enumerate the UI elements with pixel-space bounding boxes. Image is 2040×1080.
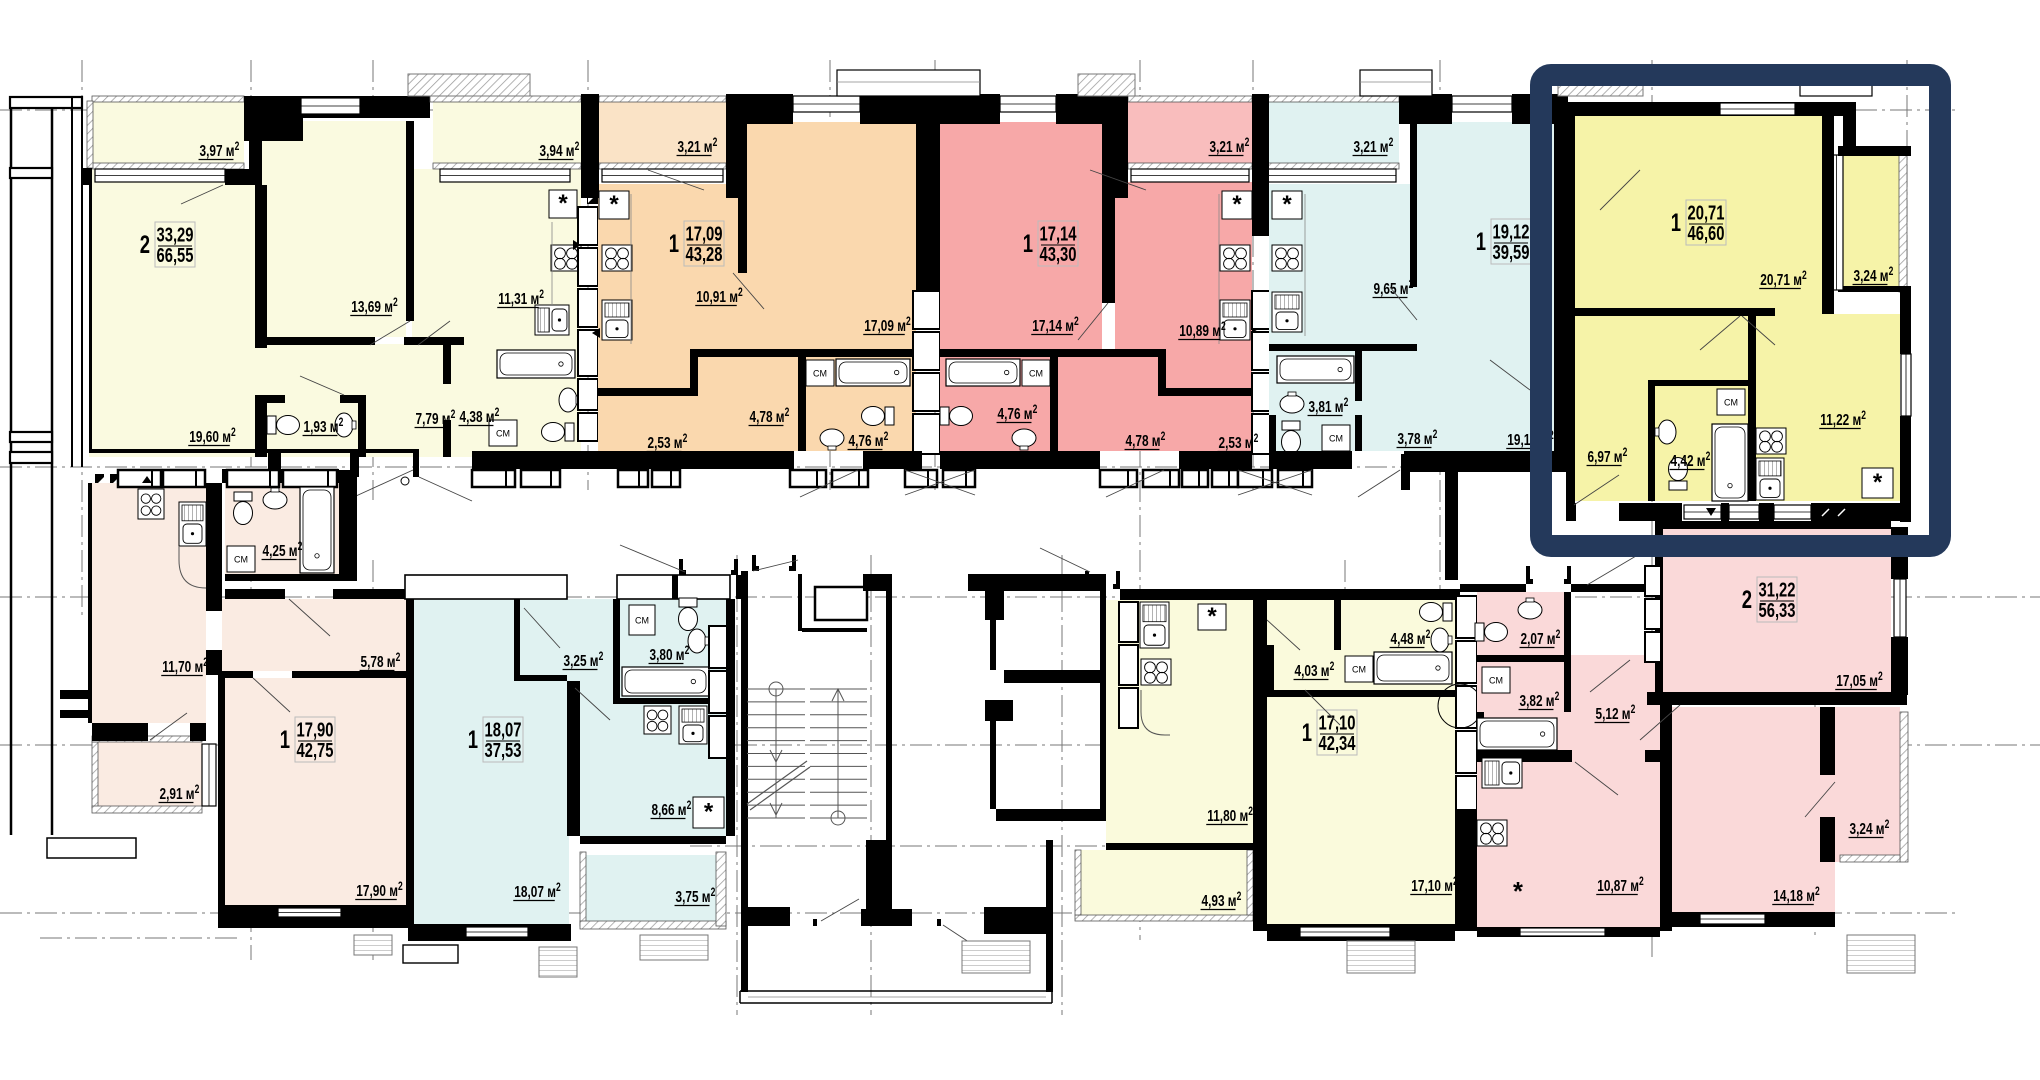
svg-text:1: 1 (1671, 208, 1681, 236)
svg-text:4,25 м2: 4,25 м2 (263, 541, 303, 560)
svg-text:4,76 м2: 4,76 м2 (849, 431, 889, 450)
svg-text:4,38 м2: 4,38 м2 (460, 407, 500, 426)
svg-text:СМ: СМ (1489, 676, 1503, 686)
svg-text:*: * (1232, 191, 1242, 218)
svg-text:СМ: СМ (1329, 434, 1343, 444)
svg-text:2: 2 (1742, 585, 1752, 613)
svg-text:18,07 м2: 18,07 м2 (514, 882, 561, 901)
svg-text:3,21 м2: 3,21 м2 (678, 137, 718, 156)
svg-text:43,30: 43,30 (1039, 243, 1076, 266)
svg-text:*: * (1207, 603, 1217, 630)
svg-text:11,22 м2: 11,22 м2 (1820, 410, 1866, 429)
svg-text:4,48 м2: 4,48 м2 (1391, 629, 1431, 648)
svg-text:3,80 м2: 3,80 м2 (650, 645, 690, 664)
svg-text:*: * (609, 191, 619, 218)
svg-text:33,29: 33,29 (156, 223, 193, 246)
svg-text:8,66 м2: 8,66 м2 (652, 800, 692, 819)
svg-text:17,90: 17,90 (296, 718, 333, 741)
svg-text:1: 1 (468, 725, 478, 753)
svg-text:17,09 м2: 17,09 м2 (864, 316, 911, 335)
svg-text:*: * (558, 190, 568, 217)
svg-text:5,78 м2: 5,78 м2 (361, 652, 401, 671)
svg-text:СМ: СМ (1724, 398, 1738, 408)
svg-text:1: 1 (669, 229, 679, 257)
svg-text:17,09: 17,09 (685, 222, 722, 245)
svg-text:СМ: СМ (234, 555, 248, 565)
svg-text:17,90 м2: 17,90 м2 (356, 881, 403, 900)
svg-text:3,21 м2: 3,21 м2 (1210, 137, 1250, 156)
svg-text:11,80 м2: 11,80 м2 (1207, 806, 1253, 825)
svg-text:*: * (1282, 191, 1292, 218)
svg-text:1: 1 (1302, 718, 1312, 746)
svg-text:3,97 м2: 3,97 м2 (200, 141, 240, 160)
svg-text:17,14: 17,14 (1039, 222, 1076, 245)
svg-text:4,78 м2: 4,78 м2 (1126, 431, 1166, 450)
svg-text:1: 1 (280, 725, 290, 753)
svg-text:4,42 м2: 4,42 м2 (1671, 451, 1711, 470)
svg-text:10,89 м2: 10,89 м2 (1179, 321, 1226, 340)
svg-text:3,82 м2: 3,82 м2 (1520, 691, 1560, 710)
svg-text:10,87 м2: 10,87 м2 (1597, 876, 1644, 895)
svg-text:10,91 м2: 10,91 м2 (696, 287, 743, 306)
svg-text:19,12: 19,12 (1492, 220, 1529, 243)
svg-text:9,65 м2: 9,65 м2 (1374, 279, 1414, 298)
svg-text:17,05 м2: 17,05 м2 (1836, 671, 1883, 690)
svg-text:39,59: 39,59 (1492, 241, 1529, 264)
svg-text:3,78 м2: 3,78 м2 (1398, 429, 1438, 448)
svg-text:СМ: СМ (813, 369, 827, 379)
svg-text:14,18 м2: 14,18 м2 (1773, 886, 1820, 905)
svg-text:43,28: 43,28 (685, 243, 722, 266)
svg-text:56,33: 56,33 (1758, 599, 1795, 622)
svg-text:18,07: 18,07 (484, 718, 521, 741)
svg-text:1: 1 (1023, 229, 1033, 257)
svg-text:СМ: СМ (1352, 665, 1366, 675)
svg-text:2: 2 (140, 230, 150, 258)
svg-text:7,79 м2: 7,79 м2 (416, 409, 456, 428)
svg-text:3,21 м2: 3,21 м2 (1354, 137, 1394, 156)
svg-text:19,60 м2: 19,60 м2 (189, 427, 236, 446)
svg-text:*: * (1873, 469, 1883, 496)
svg-text:5,12 м2: 5,12 м2 (1596, 704, 1636, 723)
svg-text:13,69 м2: 13,69 м2 (351, 297, 398, 316)
svg-text:4,76 м2: 4,76 м2 (998, 404, 1038, 423)
svg-text:11,70 м2: 11,70 м2 (162, 657, 208, 676)
svg-text:3,24 м2: 3,24 м2 (1850, 819, 1890, 838)
svg-text:4,78 м2: 4,78 м2 (750, 407, 790, 426)
svg-text:3,24 м2: 3,24 м2 (1854, 266, 1894, 285)
svg-text:31,22: 31,22 (1758, 578, 1795, 601)
svg-text:СМ: СМ (635, 616, 649, 626)
svg-text:2,53 м2: 2,53 м2 (1219, 433, 1259, 452)
svg-text:2,07 м2: 2,07 м2 (1521, 629, 1561, 648)
svg-text:20,71: 20,71 (1687, 201, 1724, 224)
svg-text:СМ: СМ (1029, 369, 1043, 379)
svg-text:66,55: 66,55 (156, 244, 193, 267)
svg-text:3,75 м2: 3,75 м2 (676, 887, 716, 906)
svg-text:3,81 м2: 3,81 м2 (1309, 397, 1349, 416)
svg-text:2,91 м2: 2,91 м2 (160, 784, 200, 803)
svg-text:*: * (704, 799, 714, 826)
svg-text:СМ: СМ (496, 429, 510, 439)
svg-text:17,10 м2: 17,10 м2 (1411, 876, 1458, 895)
svg-text:4,03 м2: 4,03 м2 (1295, 661, 1335, 680)
svg-text:1,93 м2: 1,93 м2 (304, 417, 344, 436)
svg-text:37,53: 37,53 (484, 739, 521, 762)
svg-text:*: * (1513, 878, 1523, 906)
svg-text:11,31 м2: 11,31 м2 (498, 289, 544, 308)
svg-text:42,34: 42,34 (1318, 732, 1355, 755)
svg-text:20,71 м2: 20,71 м2 (1760, 270, 1807, 289)
svg-text:3,25 м2: 3,25 м2 (564, 651, 604, 670)
svg-text:46,60: 46,60 (1687, 222, 1724, 245)
svg-text:17,14 м2: 17,14 м2 (1032, 316, 1079, 335)
svg-text:6,97 м2: 6,97 м2 (1588, 447, 1628, 466)
svg-text:42,75: 42,75 (296, 739, 333, 762)
svg-text:3,94 м2: 3,94 м2 (540, 141, 580, 160)
svg-text:4,93 м2: 4,93 м2 (1202, 891, 1242, 910)
svg-text:1: 1 (1476, 227, 1486, 255)
svg-text:2,53 м2: 2,53 м2 (648, 433, 688, 452)
